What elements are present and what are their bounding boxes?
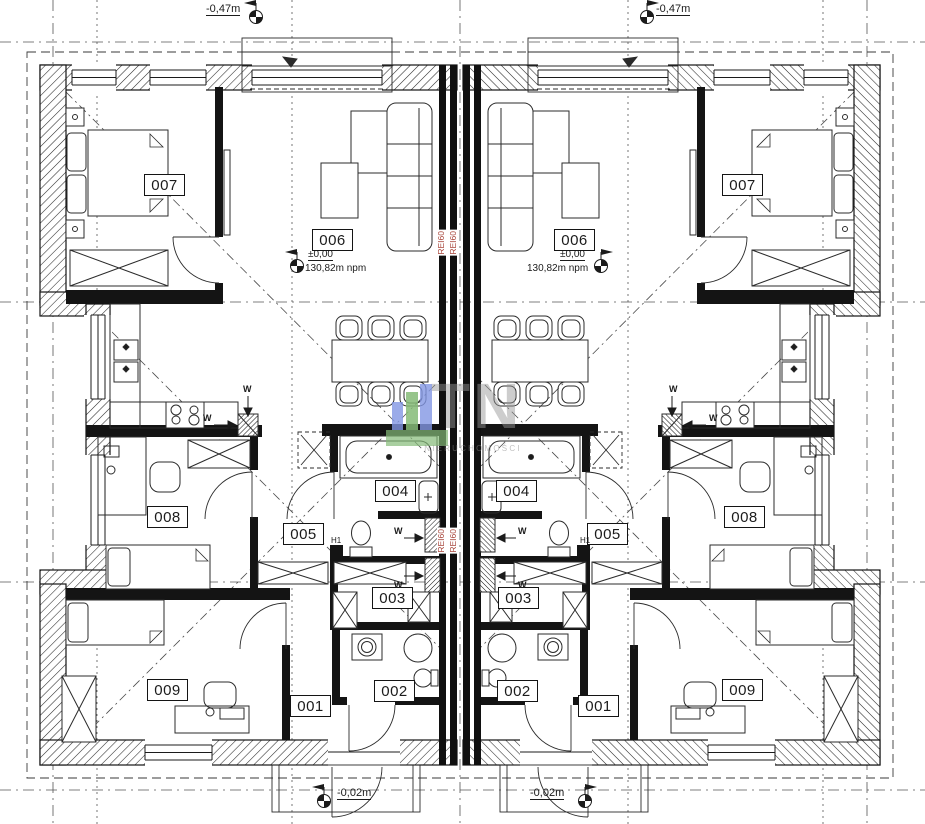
vent-label-storage-left: W xyxy=(394,580,403,590)
fire-rating-label-2: REI60 xyxy=(449,230,458,256)
vent-label-bath-left: W xyxy=(394,526,403,536)
vent-label-storage-right: W xyxy=(518,580,527,590)
watermark: TN NIERUCHOMOŚCI xyxy=(383,368,563,460)
floor-plan-sheet: -0,47m -0,47m -0,02m -0,02m ±0,00 130,82… xyxy=(0,0,925,824)
fire-rating-label-4: REI60 xyxy=(449,528,458,554)
room-label-002-left: 002 xyxy=(374,680,415,702)
room-label-003-right: 003 xyxy=(498,587,539,609)
room-label-008-left: 008 xyxy=(147,506,188,528)
room-label-004-right: 004 xyxy=(496,480,537,502)
room-label-009-left: 009 xyxy=(147,679,188,701)
watermark-caption: NIERUCHOMOŚCI xyxy=(383,444,563,453)
level-porch-right: -0,02m xyxy=(530,787,564,800)
room-label-003-left: 003 xyxy=(372,587,413,609)
vent-label-kitchen-side-right: W xyxy=(709,413,718,423)
watermark-initials: TN xyxy=(431,368,522,444)
level-street-left: -0,47m xyxy=(206,3,240,16)
vent-label-kitchen-side-left: W xyxy=(203,413,212,423)
h1-label-left: H1 xyxy=(331,536,341,545)
room-label-004-left: 004 xyxy=(375,480,416,502)
room-label-007-right: 007 xyxy=(722,174,763,196)
room-label-008-right: 008 xyxy=(724,506,765,528)
watermark-bar-1 xyxy=(392,402,403,430)
room-label-002-right: 002 xyxy=(497,680,538,702)
vent-label-kitchen-top-right: W xyxy=(669,384,678,394)
level-street-right: -0,47m xyxy=(656,3,690,16)
room-label-009-right: 009 xyxy=(722,679,763,701)
level-elevation-right: 130,82m npm xyxy=(527,263,588,274)
watermark-bar-2 xyxy=(406,392,418,430)
vent-label-bath-right: W xyxy=(518,526,527,536)
level-elevation-left: 130,82m npm xyxy=(305,263,366,274)
room-label-007-left: 007 xyxy=(144,174,185,196)
h1-label-right: H1 xyxy=(580,536,590,545)
fire-rating-label-3: REI60 xyxy=(437,528,446,554)
fire-rating-label-1: REI60 xyxy=(437,230,446,256)
room-label-005-right: 005 xyxy=(587,523,628,545)
room-label-001-right: 001 xyxy=(578,695,619,717)
level-porch-left: -0,02m xyxy=(337,787,371,800)
room-label-006-right: 006 xyxy=(554,229,595,251)
room-label-005-left: 005 xyxy=(283,523,324,545)
room-label-001-left: 001 xyxy=(290,695,331,717)
vent-label-kitchen-top-left: W xyxy=(243,384,252,394)
room-label-006-left: 006 xyxy=(312,229,353,251)
